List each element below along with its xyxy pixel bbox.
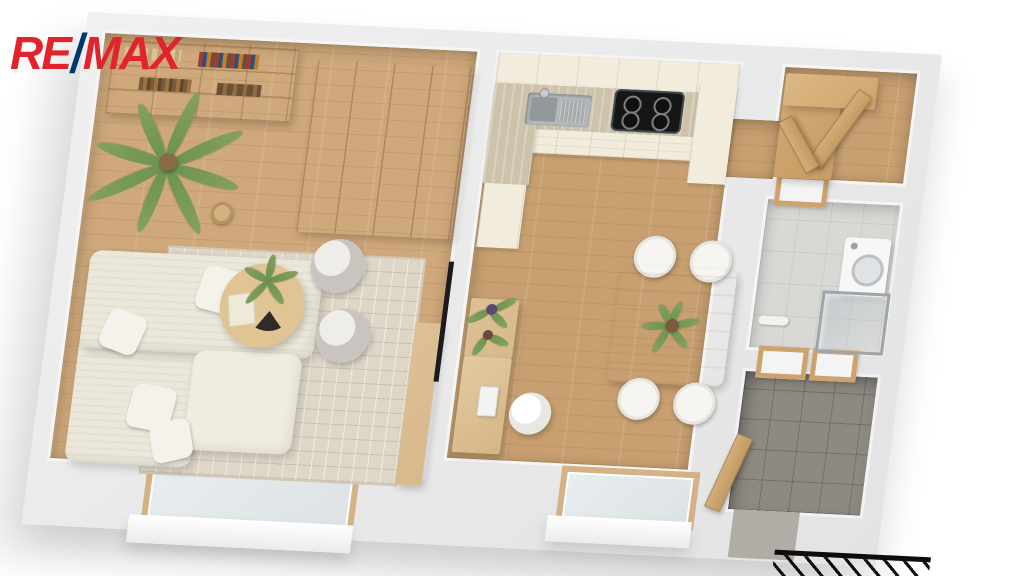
table-centerpiece-plant: [638, 295, 706, 358]
kitchen-end-cabinet: [476, 183, 526, 249]
cooktop-burner: [650, 113, 670, 132]
cooktop-burner: [620, 111, 640, 130]
washer-door: [850, 254, 886, 288]
sink-faucet: [540, 89, 549, 97]
floorplan-screenshot: RE/MAX: [0, 0, 1024, 576]
kitchen-sink: [524, 92, 592, 127]
sideboard-plants: [461, 291, 529, 354]
induction-cooktop: [612, 91, 683, 132]
remax-logo: RE/MAX: [10, 26, 179, 80]
wardrobe: [296, 60, 473, 240]
logo-re: RE: [10, 27, 70, 79]
sink-basin: [529, 97, 558, 122]
book-spines: [198, 52, 260, 70]
entry-mat-hatched-area: [765, 550, 931, 576]
logo-max: MAX: [83, 27, 179, 79]
walk-in-shower: [815, 290, 891, 355]
towel-rail: [758, 315, 789, 326]
sink-drainer: [559, 99, 588, 122]
coffee-table-plant: [237, 249, 305, 312]
laptop: [476, 386, 499, 417]
logo-slash: /: [70, 21, 83, 85]
sofa-chaise: [182, 350, 303, 455]
palm-plant: [85, 87, 255, 245]
washer-dial: [850, 242, 858, 249]
bathroom-door-frame: [755, 346, 809, 381]
washing-machine: [838, 237, 892, 297]
plant-leaf: [243, 279, 271, 306]
apartment-3d-plan: [21, 12, 942, 567]
